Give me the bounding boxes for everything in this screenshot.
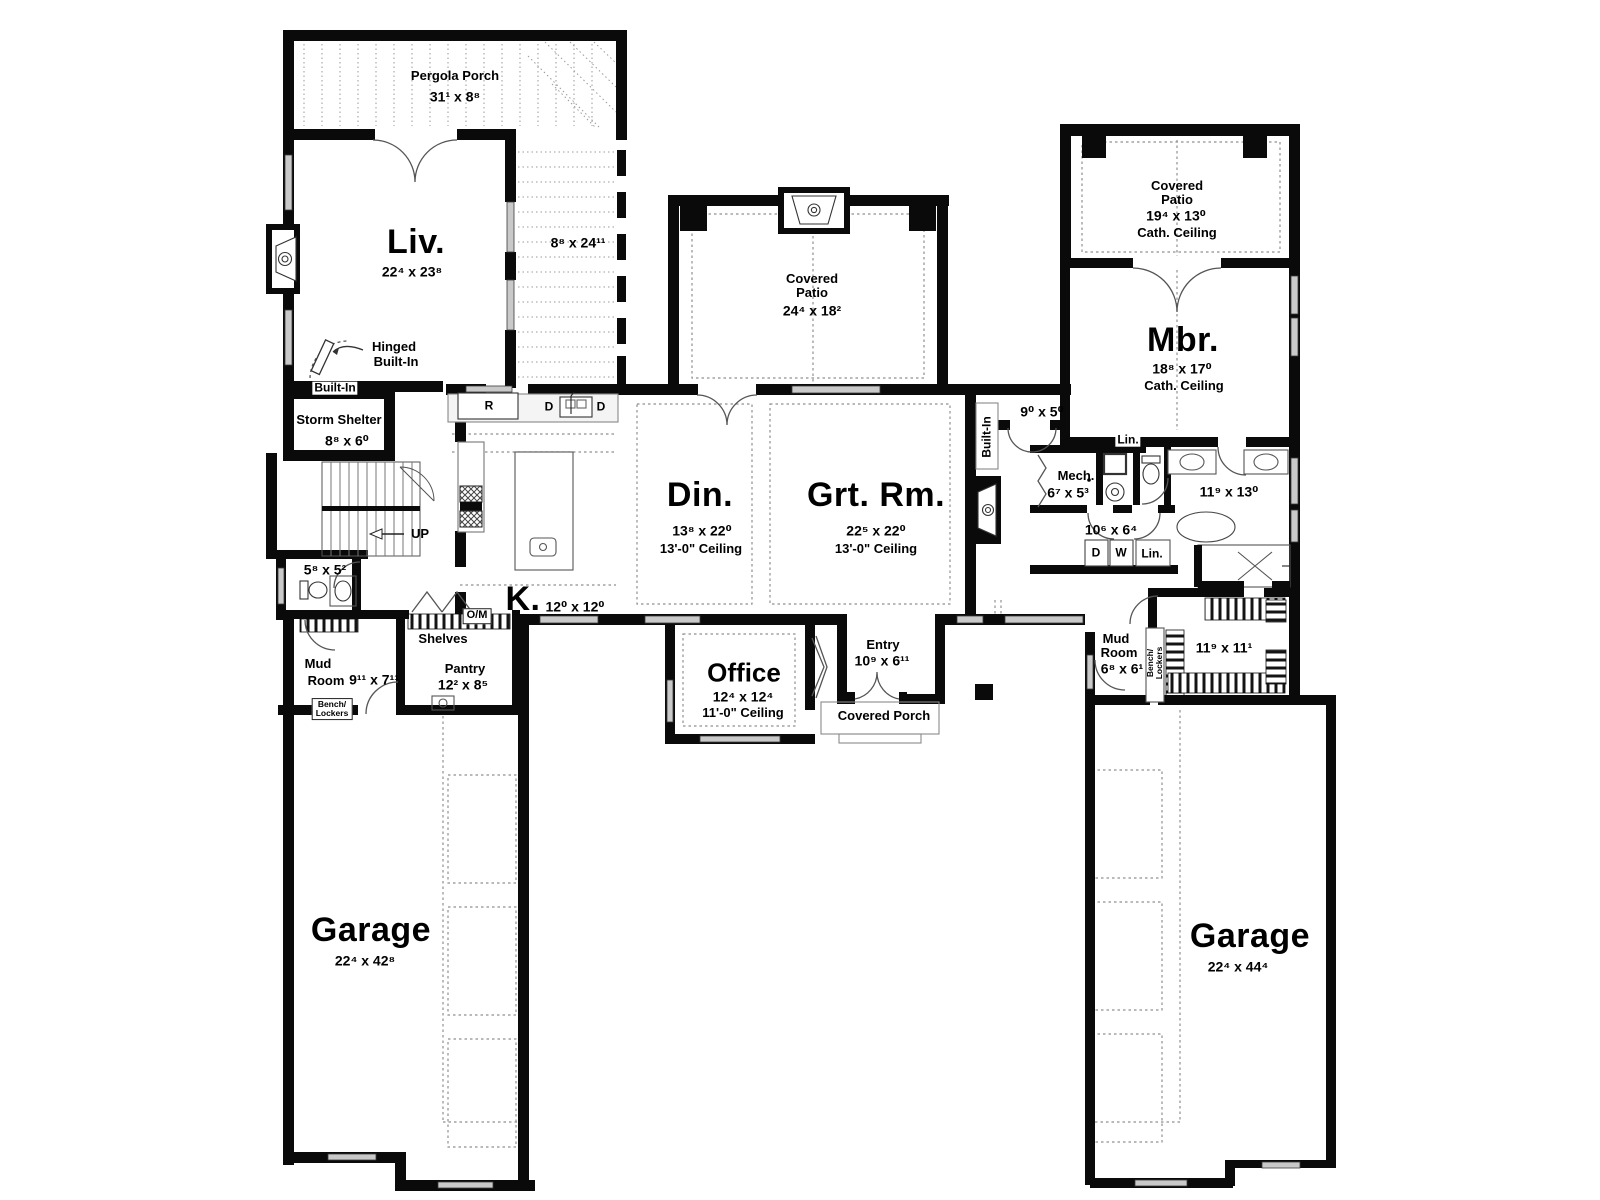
dim-label-mud-left: 9¹¹ x 7¹¹ xyxy=(349,673,399,688)
room-label-covered-porch: Covered Porch xyxy=(836,709,932,723)
stairs-up-label: UP xyxy=(411,527,429,541)
dim-label-patio-right: 19⁴ x 13⁰ xyxy=(1146,209,1206,224)
room-label-mud-left-1: Mud xyxy=(305,657,332,671)
floor-plan: Pergola Porch 31¹ x 8⁸ Liv. 22⁴ x 23⁸ 8⁸… xyxy=(0,0,1600,1200)
room-label-dining: Din. xyxy=(667,478,733,514)
dim-label-great-room: 22⁵ x 22⁰ xyxy=(846,524,905,539)
note-bench-lockers-right: Bench/ Lockers xyxy=(1146,647,1164,680)
room-label-entry: Entry xyxy=(866,638,899,652)
dim-label-garage-right: 22⁴ x 44⁴ xyxy=(1208,960,1269,975)
room-label-mud-right-1: Mud xyxy=(1103,632,1130,646)
dim-label-storm-shelter: 8⁸ x 6⁰ xyxy=(325,434,369,449)
note-oven-micro: O/M xyxy=(463,608,492,624)
dim-label-hall: 9⁰ x 5⁰ xyxy=(1020,405,1063,420)
dim-label-closet: 11⁹ x 11¹ xyxy=(1196,641,1252,656)
dim-label-patio-main: 24⁴ x 18² xyxy=(783,304,841,319)
note-shelves: Shelves xyxy=(418,632,467,646)
dim-label-laundry: 10⁶ x 6⁴ xyxy=(1085,523,1137,538)
ceiling-label-great-room: 13'-0" Ceiling xyxy=(835,542,917,556)
dim-label-office: 12⁴ x 12⁴ xyxy=(713,690,774,705)
dim-label-living: 22⁴ x 23⁸ xyxy=(382,265,442,280)
room-label-mud-right-2: Room xyxy=(1101,646,1138,660)
floor-plan-drawing xyxy=(0,0,1600,1200)
dim-label-pantry: 12² x 8⁵ xyxy=(438,678,488,693)
dim-label-mud-right: 6⁸ x 6¹ xyxy=(1101,662,1143,677)
room-label-pantry: Pantry xyxy=(445,662,485,676)
bench-left-line2: Lockers xyxy=(316,709,349,718)
stairs xyxy=(322,462,434,556)
note-builtin-great-room: Built-In xyxy=(981,416,994,457)
appliance-washer-label: W xyxy=(1115,547,1126,560)
appliance-dryer-label: D xyxy=(1092,547,1101,560)
bench-right-line2: Lockers xyxy=(1155,647,1164,680)
note-builtin-living: Built-In xyxy=(312,382,357,395)
dim-label-dining: 13⁸ x 22⁰ xyxy=(672,524,731,539)
room-label-garage-left: Garage xyxy=(311,913,431,949)
note-bench-lockers-left: Bench/ Lockers xyxy=(312,698,353,720)
dim-label-master-bath: 11⁹ x 13⁰ xyxy=(1200,485,1259,500)
dim-label-deck: 8⁸ x 24¹¹ xyxy=(551,236,606,251)
ceiling-label-master: Cath. Ceiling xyxy=(1144,379,1223,393)
room-label-patio-right-1: Covered xyxy=(1151,179,1203,193)
note-hinged-builtin-2: Built-In xyxy=(374,355,419,369)
note-linen-2: Lin. xyxy=(1141,548,1162,561)
room-label-patio-main-2: Patio xyxy=(796,286,828,300)
room-label-patio-main-1: Covered xyxy=(786,272,838,286)
room-label-patio-right-2: Patio xyxy=(1161,193,1193,207)
note-hinged-builtin-1: Hinged xyxy=(372,340,416,354)
dim-label-pergola-porch: 31¹ x 8⁸ xyxy=(430,90,480,105)
appliance-range-label: R xyxy=(485,400,494,413)
ceiling-label-office: 11'-0" Ceiling xyxy=(702,706,784,720)
room-label-garage-right: Garage xyxy=(1190,919,1310,955)
room-label-kitchen: K. xyxy=(506,582,541,618)
ceiling-label-dining: 13'-0" Ceiling xyxy=(660,542,742,556)
dim-label-entry: 10⁹ x 6¹¹ xyxy=(855,654,910,669)
room-label-mud-left-2: Room xyxy=(308,674,345,688)
dim-label-kitchen: 12⁰ x 12⁰ xyxy=(546,600,605,615)
room-label-great-room: Grt. Rm. xyxy=(807,478,945,514)
dim-label-garage-left: 22⁴ x 42⁸ xyxy=(335,954,395,969)
appliance-dw-left-label: D xyxy=(545,401,554,414)
appliance-dw-right-label: D xyxy=(597,401,606,414)
room-label-master: Mbr. xyxy=(1147,323,1219,359)
room-label-pergola-porch: Pergola Porch xyxy=(411,69,499,83)
note-linen-1: Lin. xyxy=(1115,434,1140,447)
ceiling-label-patio-right: Cath. Ceiling xyxy=(1137,226,1216,240)
dim-label-master: 18⁸ x 17⁰ xyxy=(1152,362,1211,377)
room-label-mech: Mech. xyxy=(1058,469,1095,483)
room-label-office: Office xyxy=(707,659,781,686)
dim-label-powder-bath: 5⁸ x 5² xyxy=(304,563,346,578)
room-label-storm-shelter: Storm Shelter xyxy=(296,413,381,427)
dim-label-mech: 6⁷ x 5³ xyxy=(1047,486,1089,501)
room-label-living: Liv. xyxy=(387,225,445,261)
